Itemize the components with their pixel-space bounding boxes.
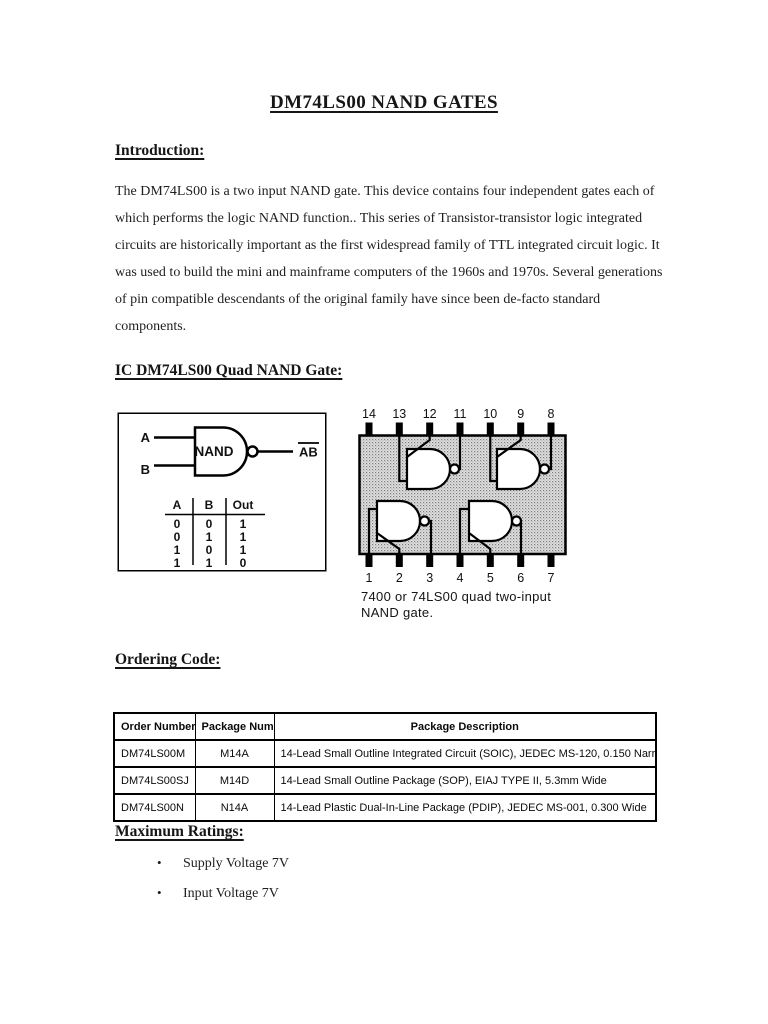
- introduction-heading: Introduction:: [115, 142, 204, 160]
- gate-4-bubble: [512, 517, 521, 526]
- tt-cell: 0: [206, 517, 213, 531]
- bullet-icon: •: [157, 885, 183, 901]
- pin-label-8: 8: [548, 407, 555, 421]
- rating-item-supply-voltage: •Supply Voltage 7V: [157, 855, 289, 872]
- gate-3: [377, 501, 420, 541]
- ic-figure-caption: 7400 or 74LS00 quad two-input NAND gate.: [361, 589, 581, 621]
- ordering-code-heading: Ordering Code:: [115, 651, 220, 669]
- tt-cell: 0: [240, 556, 247, 570]
- tt-cell: 0: [206, 543, 213, 557]
- tt-cell: 1: [206, 556, 213, 570]
- header-package-description: Package Description: [274, 713, 656, 740]
- package-description-cell: 14-Lead Small Outline Package (SOP), EIA…: [274, 767, 656, 794]
- pin-label-5: 5: [487, 571, 494, 585]
- bottom-pin-numbers: 1 2 3 4 5 6 7: [366, 571, 555, 585]
- maximum-ratings-heading: Maximum Ratings:: [115, 823, 244, 841]
- tt-cell: 1: [174, 543, 181, 557]
- gate-input-b-label: B: [141, 462, 150, 477]
- nand-gate-figure: A B NAND AB A B Out 0 0 1 0 1 1 1 0 1 1 …: [117, 412, 327, 572]
- tt-cell: 1: [240, 517, 247, 531]
- page-title: DM74LS00 NAND GATES: [0, 92, 768, 114]
- gate-input-a-label: A: [141, 430, 151, 445]
- tt-cell: 0: [174, 517, 181, 531]
- tt-cell: 0: [174, 530, 181, 544]
- table-header-row: Order Number Package Number Package Desc…: [114, 713, 656, 740]
- rating-item-input-voltage: •Input Voltage 7V: [157, 885, 279, 902]
- tt-header-b: B: [205, 498, 214, 512]
- ordering-code-table: Order Number Package Number Package Desc…: [113, 712, 657, 822]
- gate-2: [497, 449, 540, 489]
- table-row: DM74LS00M M14A 14-Lead Small Outline Int…: [114, 740, 656, 767]
- package-description-cell: 14-Lead Plastic Dual-In-Line Package (PD…: [274, 794, 656, 821]
- pin-label-9: 9: [517, 407, 524, 421]
- header-package-number: Package Number: [195, 713, 274, 740]
- order-number-cell: DM74LS00N: [114, 794, 195, 821]
- pin-label-13: 13: [392, 407, 406, 421]
- rating-text: Input Voltage 7V: [183, 886, 279, 901]
- gate-1: [407, 449, 450, 489]
- gate-name-label: NAND: [195, 444, 234, 459]
- package-number-cell: M14D: [195, 767, 274, 794]
- pin-label-3: 3: [426, 571, 433, 585]
- order-number-cell: DM74LS00M: [114, 740, 195, 767]
- tt-header-out: Out: [233, 498, 254, 512]
- package-number-cell: M14A: [195, 740, 274, 767]
- table-row: DM74LS00SJ M14D 14-Lead Small Outline Pa…: [114, 767, 656, 794]
- rating-text: Supply Voltage 7V: [183, 856, 289, 871]
- pin-label-1: 1: [366, 571, 373, 585]
- table-row: DM74LS00N N14A 14-Lead Plastic Dual-In-L…: [114, 794, 656, 821]
- gate-output-label: AB: [299, 445, 318, 460]
- ic-section-heading: IC DM74LS00 Quad NAND Gate:: [115, 362, 342, 380]
- caption-line-1: 7400 or 74LS00 quad two-input: [361, 589, 581, 605]
- document-page: DM74LS00 NAND GATES Introduction: The DM…: [0, 0, 768, 1024]
- tt-cell: 1: [240, 543, 247, 557]
- order-number-cell: DM74LS00SJ: [114, 767, 195, 794]
- bullet-icon: •: [157, 855, 183, 871]
- gate-1-bubble: [450, 465, 459, 474]
- top-pin-numbers: 14 13 12 11 10 9 8: [362, 407, 554, 421]
- tt-cell: 1: [174, 556, 181, 570]
- pin-label-12: 12: [423, 407, 437, 421]
- ic-package-figure: 14 13 12 11 10 9 8: [357, 406, 589, 586]
- pin-label-7: 7: [548, 571, 555, 585]
- pin-label-6: 6: [517, 571, 524, 585]
- top-pin-stubs: [366, 423, 555, 436]
- pin-label-2: 2: [396, 571, 403, 585]
- pin-label-11: 11: [454, 407, 467, 421]
- gate-3-bubble: [420, 517, 429, 526]
- tt-cell: 1: [206, 530, 213, 544]
- inverter-bubble: [248, 447, 258, 457]
- package-number-cell: N14A: [195, 794, 274, 821]
- caption-line-2: NAND gate.: [361, 605, 581, 621]
- pin-label-14: 14: [362, 407, 376, 421]
- header-order-number: Order Number: [114, 713, 195, 740]
- tt-header-a: A: [173, 498, 182, 512]
- gate-4: [469, 501, 512, 541]
- pin-label-10: 10: [483, 407, 497, 421]
- bottom-pin-stubs: [366, 554, 555, 567]
- gate-2-bubble: [540, 465, 549, 474]
- package-description-cell: 14-Lead Small Outline Integrated Circuit…: [274, 740, 656, 767]
- tt-cell: 1: [240, 530, 247, 544]
- introduction-paragraph: The DM74LS00 is a two input NAND gate. T…: [115, 178, 667, 340]
- pin-label-4: 4: [457, 571, 464, 585]
